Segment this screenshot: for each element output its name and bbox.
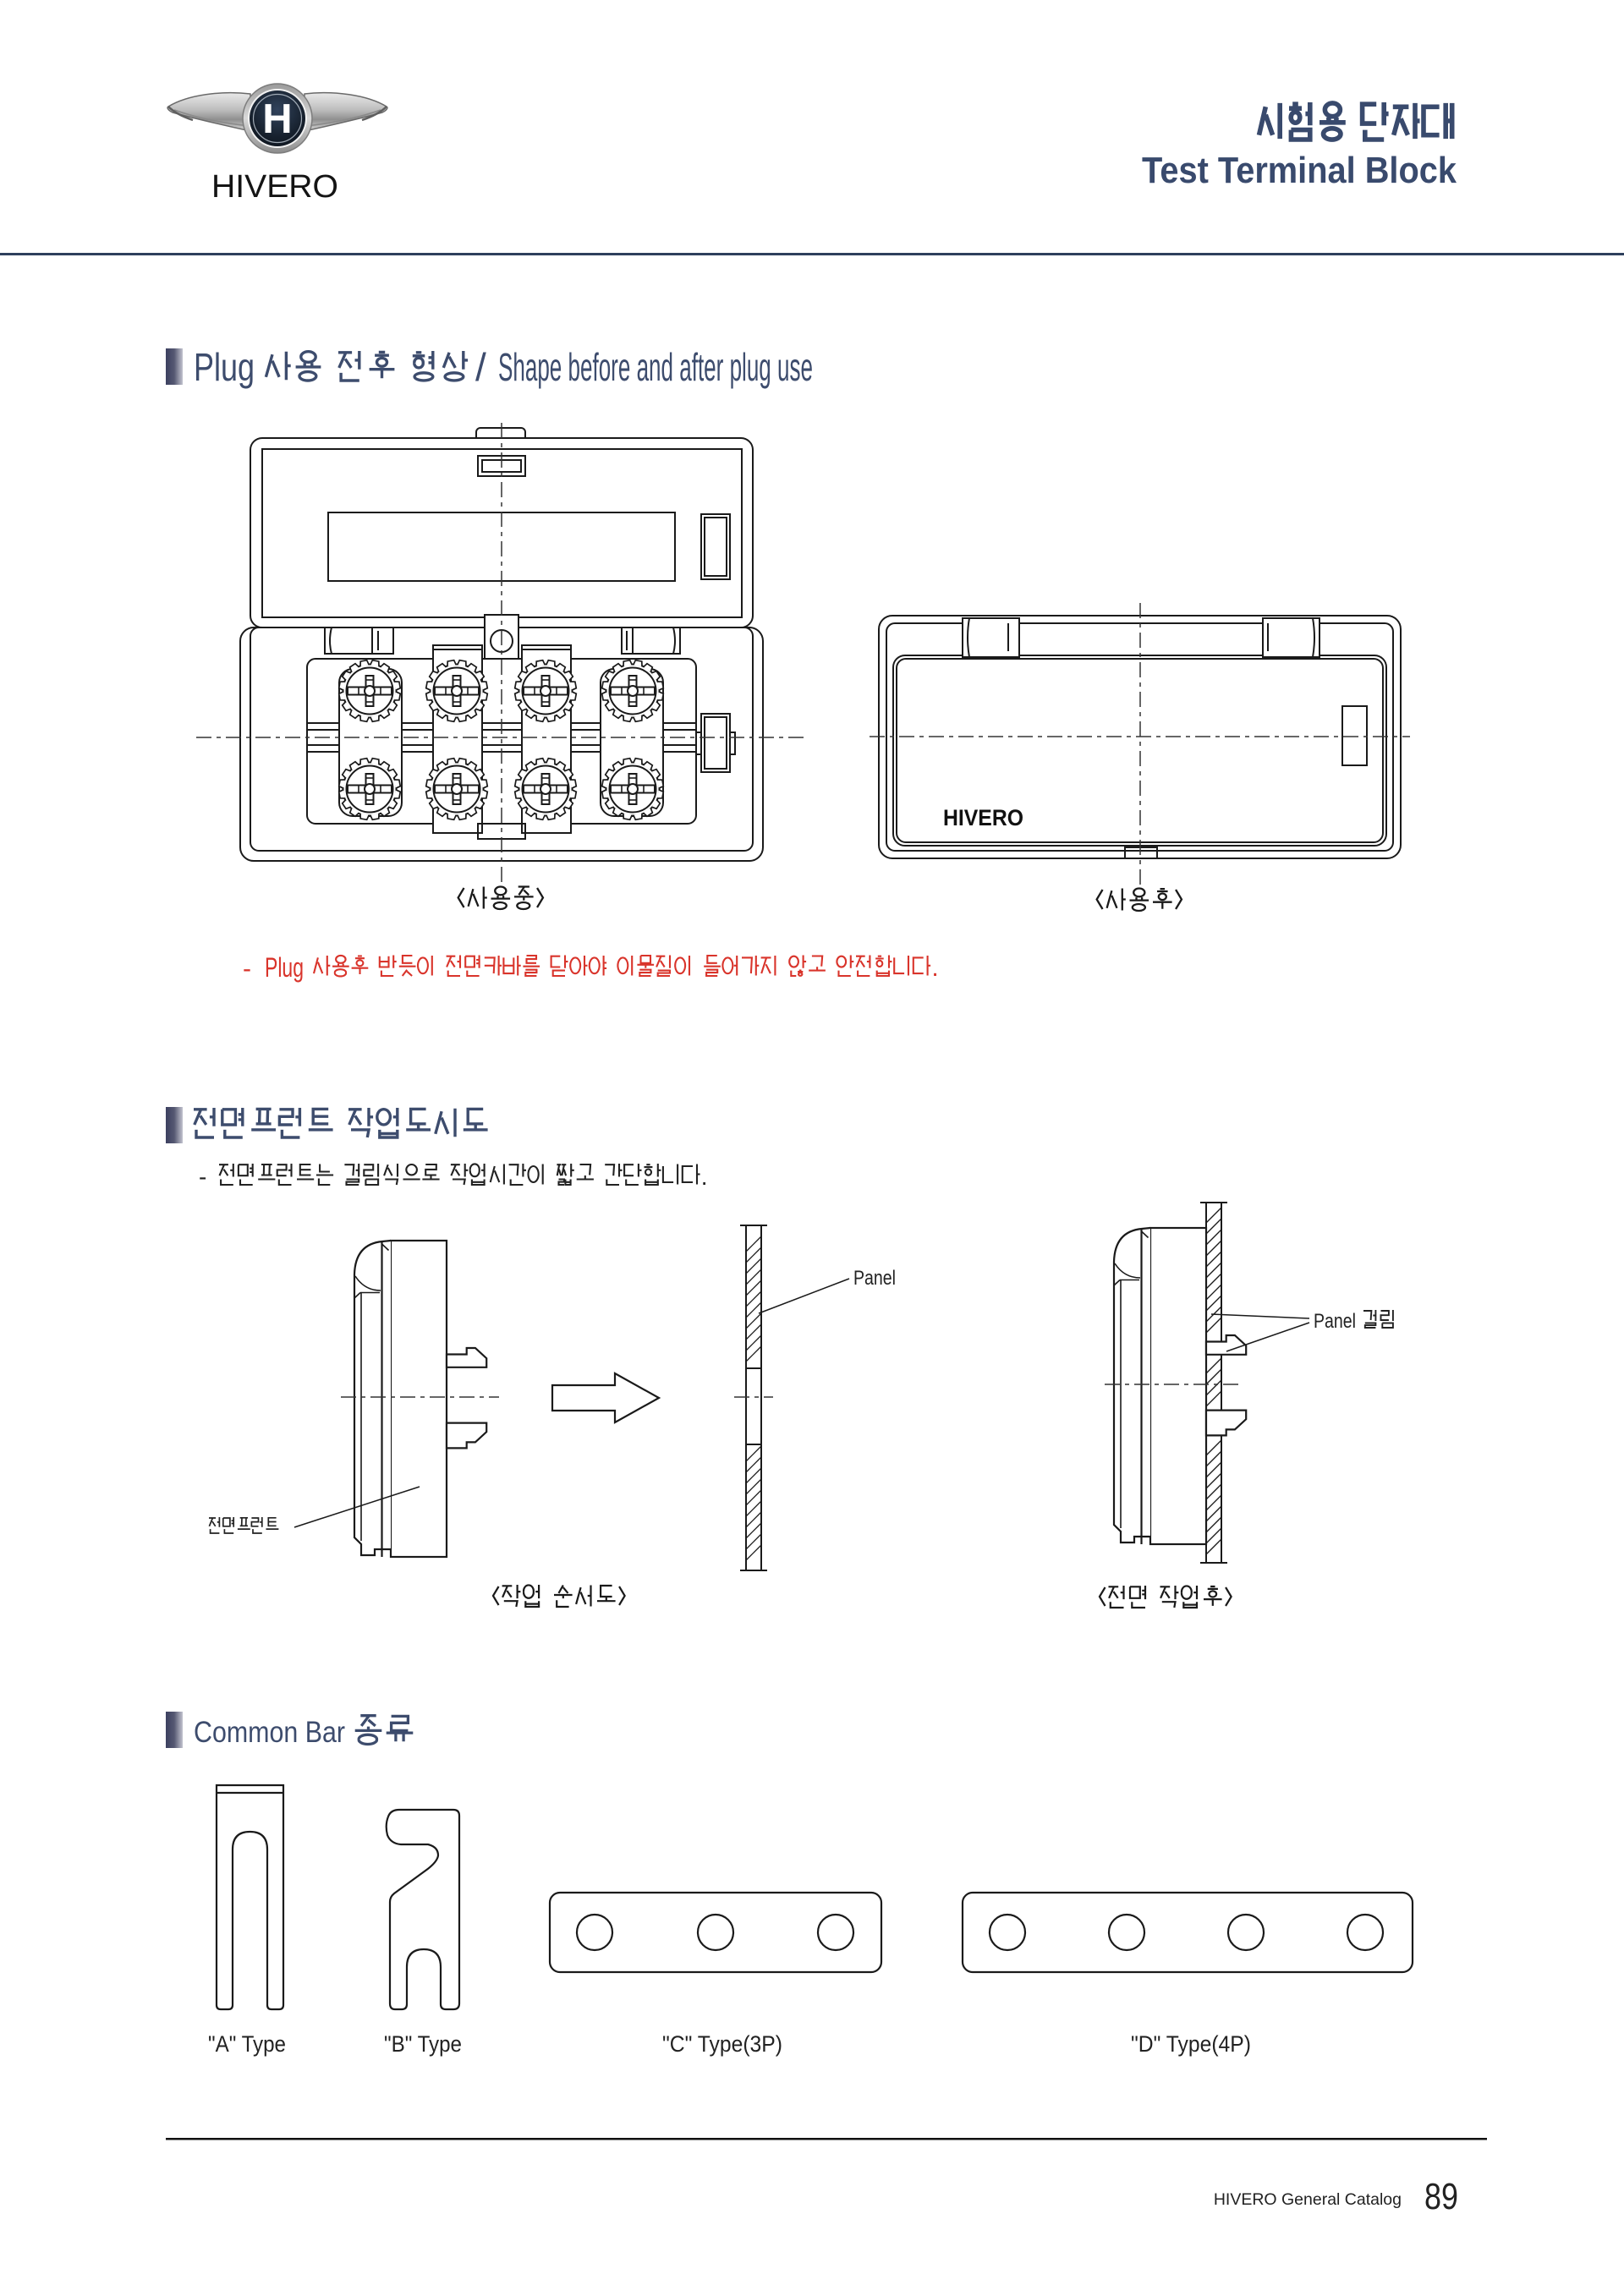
svg-text:Test Terminal Block: Test Terminal Block (1142, 150, 1457, 191)
svg-text:HIVERO: HIVERO (943, 805, 1023, 830)
svg-text:HIVERO: HIVERO (211, 169, 338, 205)
svg-text:Shape before and after plug us: Shape before and after plug use (498, 345, 813, 389)
svg-text:Panel: Panel (1314, 1310, 1356, 1333)
svg-text:/: / (475, 345, 486, 389)
svg-text:Panel: Panel (853, 1267, 896, 1290)
svg-text:-: - (199, 1164, 206, 1190)
svg-text:"C" Type(3P): "C" Type(3P) (662, 2031, 782, 2057)
svg-text:89: 89 (1424, 2176, 1458, 2217)
svg-text:HIVERO General Catalog: HIVERO General Catalog (1214, 2190, 1402, 2209)
svg-text:H: H (262, 96, 292, 142)
svg-text:"D" Type(4P): "D" Type(4P) (1131, 2031, 1251, 2057)
svg-text:"B" Type: "B" Type (384, 2031, 462, 2057)
svg-text:.: . (701, 1164, 708, 1190)
svg-text:-: - (243, 955, 251, 983)
svg-text:Common Bar: Common Bar (194, 1716, 345, 1749)
svg-text:.: . (931, 954, 938, 982)
svg-text:Plug: Plug (194, 345, 255, 389)
svg-text:Plug: Plug (265, 952, 304, 983)
svg-text:"A" Type: "A" Type (208, 2031, 286, 2057)
